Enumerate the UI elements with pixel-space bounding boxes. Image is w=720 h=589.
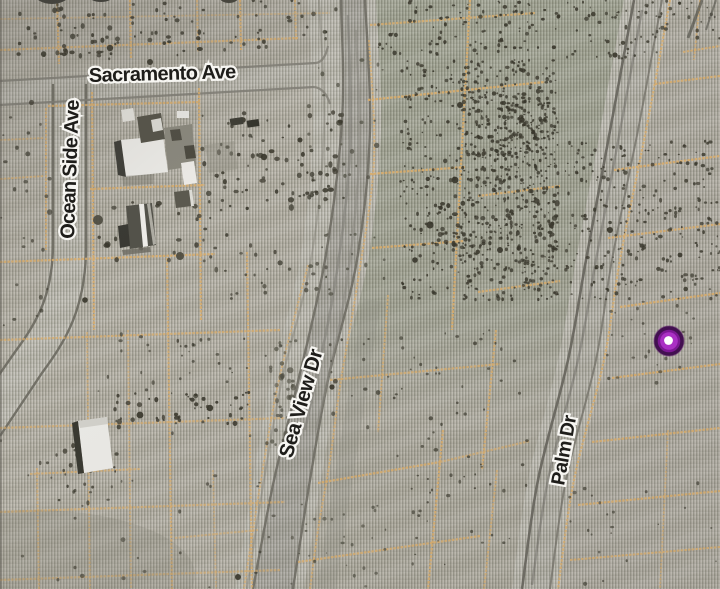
svg-text:Sacramento Ave: Sacramento Ave bbox=[89, 61, 237, 87]
